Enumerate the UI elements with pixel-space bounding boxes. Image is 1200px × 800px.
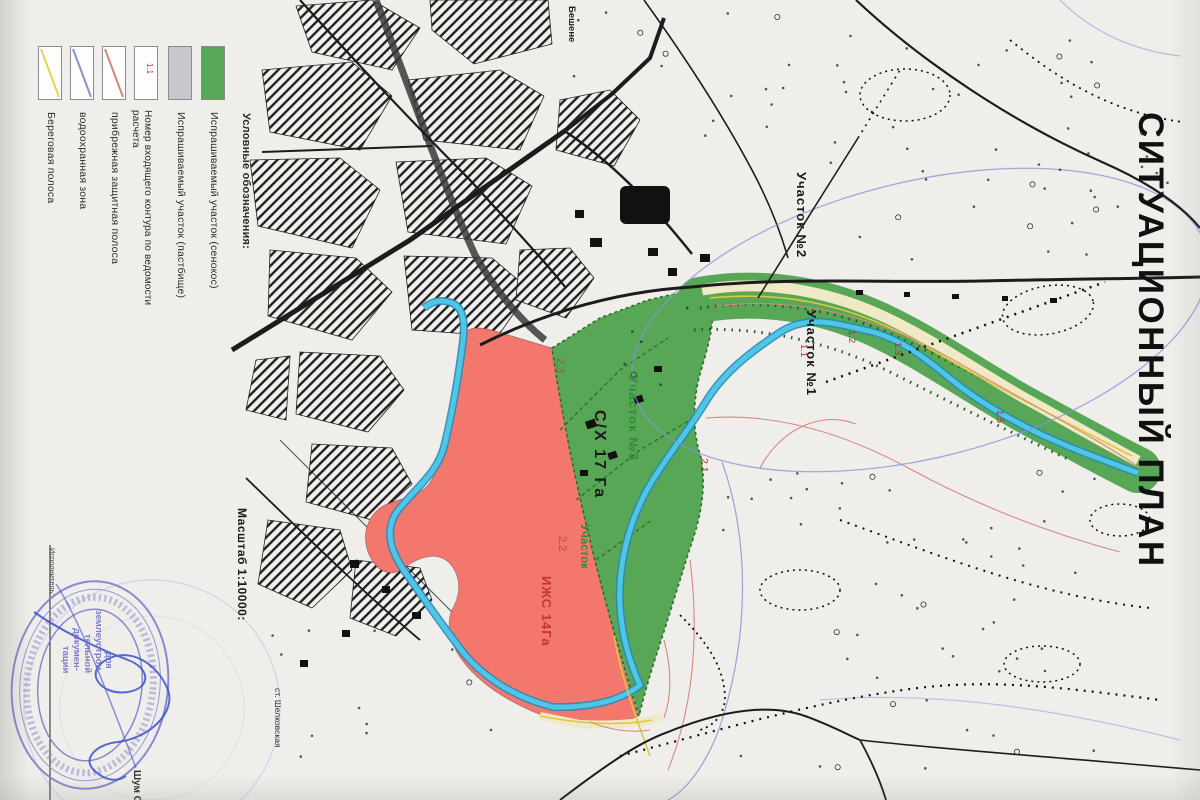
large-building (620, 186, 670, 224)
legend-swatch-coastal-strip (38, 46, 62, 105)
legend-swatch-hayfield (201, 46, 225, 105)
label-parcel-3: Участок №3 (625, 375, 640, 461)
executor-name: Шум С. (131, 770, 143, 800)
legend-item-label-pasture: Испрашиваемый участок (пастбище) (175, 112, 187, 298)
label-contour-1-5: 1.5 (993, 410, 1004, 423)
label-area-sx-17ga: С/Х 17 Га (590, 410, 608, 499)
legend-swatch-riparian (102, 46, 126, 105)
legend-header: Условные обозначения: (239, 113, 252, 249)
stamp-line-5: тации (59, 646, 70, 673)
executor-label: Исполнитель: (47, 548, 56, 596)
stamp-line-4: докумен- (70, 628, 81, 671)
label-contour-1-1: 1.1 (797, 344, 808, 357)
stamp-line-3: тельной (81, 634, 92, 673)
label-contour-2-1: 2.1 (698, 458, 710, 473)
label-contour-2-2: 2.2 (555, 536, 568, 551)
scanned-map-page: 1.1 Условные обозначения: Испрашиваемый … (0, 0, 1200, 800)
label-settlement: Бешене (565, 6, 576, 42)
legend-item-label-hayfield: Испрашиваемый участок (сенокос) (208, 112, 220, 289)
scale-label: Масштаб 1:10000: (234, 508, 248, 621)
legend-item-label-contour-number: Номер входящего контура по ведомости рас… (129, 110, 153, 345)
legend-item-label-riparian: прибрежная защитная полоса (109, 112, 121, 264)
svg-text:1.1: 1.1 (145, 63, 154, 75)
legend-item-label-water-zone: водоохранная зона (77, 112, 89, 209)
station-label: ст. Шелковская (272, 688, 282, 748)
legend-swatch-water-zone (70, 46, 94, 105)
label-contour-2-3: 2.3 (553, 358, 566, 373)
label-parcel-2: Участок №2 (793, 172, 808, 258)
legend-item-label-coastal-strip: Береговая полоса (45, 112, 57, 203)
label-area-izhs-14ga: ИЖС 14Га (538, 576, 553, 647)
stamp-line-1: для (104, 652, 114, 669)
label-parcel-sub: Участок (577, 524, 590, 569)
page-title: СИТУАЦИОННЫЙ ПЛАН (1130, 112, 1170, 569)
stamp-line-2: землеустрои- (92, 610, 103, 673)
label-contour-1-3: 1.3 (891, 342, 902, 355)
legend-swatch-contour-number: 1.1 (134, 46, 158, 105)
legend-swatch-pasture (168, 46, 192, 105)
label-contour-1-2: 1.2 (845, 330, 856, 343)
